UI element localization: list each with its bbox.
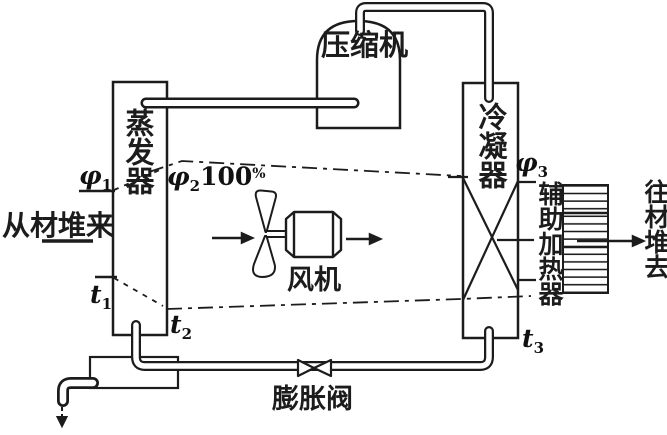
- inlet-label: 从材堆来: [2, 204, 114, 244]
- condensate-drain-pipe: [63, 383, 93, 401]
- phi1-label: φ1: [79, 163, 112, 193]
- heat-pump-drying-diagram: 蒸发器 压缩机 冷凝器 风机 膨胀阀 辅助加热器 从材堆来 往材堆去 φ1 φ2…: [0, 0, 667, 435]
- phi3-label: φ3: [515, 150, 548, 180]
- t3-label: t3: [522, 326, 544, 356]
- condenser-label: 冷凝器: [475, 102, 505, 189]
- evaporator-label: 蒸发器: [122, 108, 152, 195]
- airflow-arrow-right: [346, 235, 380, 244]
- airflow-arrow-left: [212, 234, 252, 243]
- fan-label: 风机: [287, 258, 341, 297]
- t1-label: t1: [90, 282, 112, 312]
- outlet-label: 往材堆去: [639, 179, 667, 279]
- condenser-coil-cross: [448, 177, 536, 300]
- compressor-label: 压缩机: [321, 31, 397, 61]
- heater-hatch-block: [563, 185, 608, 293]
- drain-drip-arrow: [58, 407, 67, 426]
- expansion-valve-label: 膨胀阀: [272, 377, 353, 416]
- phi2-label: φ2100%: [167, 164, 266, 194]
- t2-label: t2: [170, 312, 192, 342]
- motor-icon: [286, 212, 341, 257]
- aux-heater-label: 辅助加热器: [535, 181, 562, 306]
